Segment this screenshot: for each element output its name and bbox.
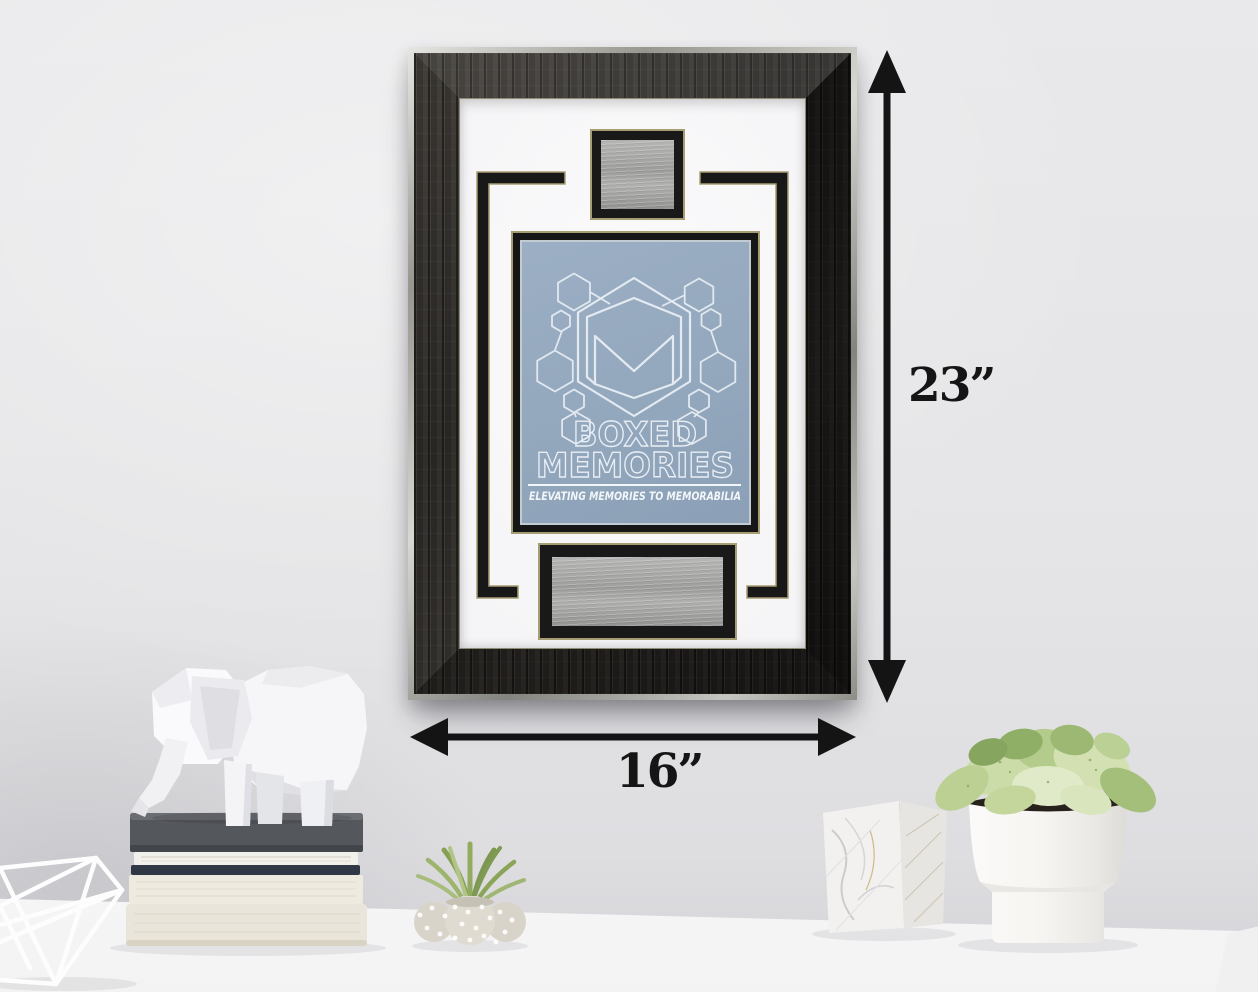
width-label: 16” bbox=[616, 744, 700, 799]
center-logo-panel: BOXED MEMORIES ELEVATING MEMORIES TO MEM… bbox=[513, 233, 758, 532]
bottom-engraving-plate bbox=[540, 545, 735, 638]
top-plate-brushed-metal bbox=[601, 140, 674, 209]
bottom-plate-brushed-metal bbox=[552, 557, 723, 626]
top-engraving-plate bbox=[592, 131, 683, 218]
height-label: 23” bbox=[908, 358, 994, 413]
picture-frame: BOXED MEMORIES ELEVATING MEMORIES TO MEM… bbox=[408, 47, 857, 700]
frame-mat: BOXED MEMORIES ELEVATING MEMORIES TO MEM… bbox=[460, 99, 805, 648]
hexagon-m-logo: BOXED MEMORIES ELEVATING MEMORIES TO MEM… bbox=[520, 240, 751, 525]
product-photo-scene: BOXED MEMORIES ELEVATING MEMORIES TO MEM… bbox=[0, 0, 1258, 992]
brand-line2: MEMORIES bbox=[536, 446, 734, 486]
insert-tagline: ELEVATING MEMORIES TO MEMORABILIA bbox=[529, 489, 741, 503]
